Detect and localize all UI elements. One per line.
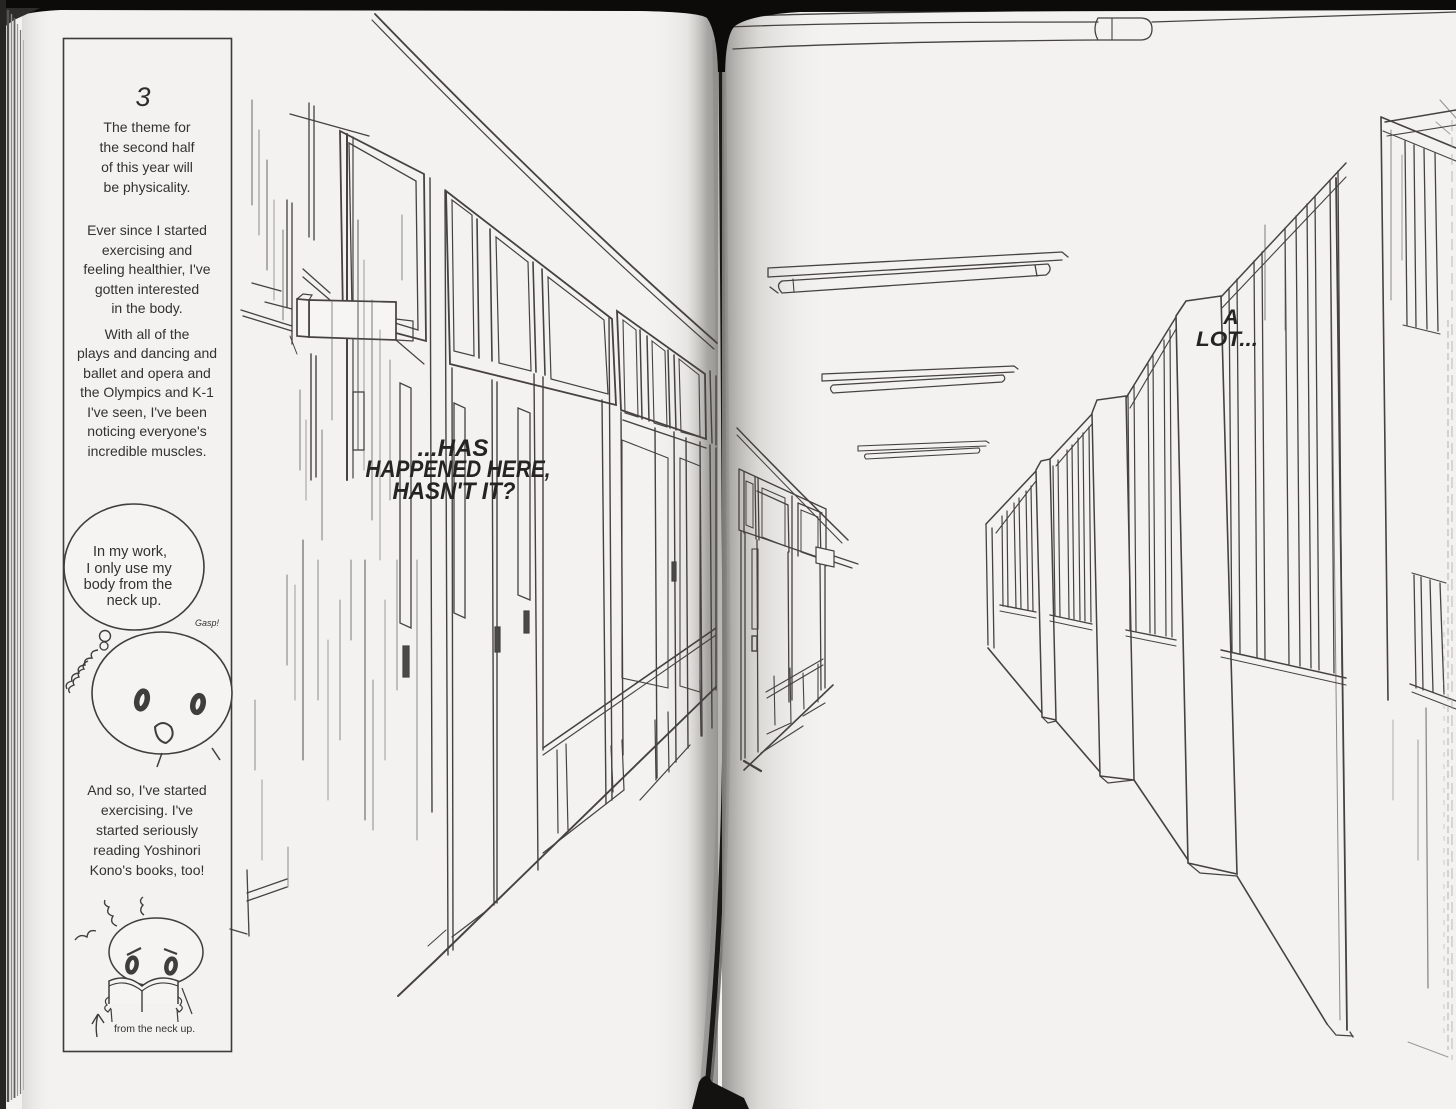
- svg-text:I've seen, I've been: I've seen, I've been: [87, 404, 207, 420]
- svg-text:And so, I've started: And so, I've started: [87, 782, 206, 798]
- svg-text:In my work,: In my work,: [93, 544, 167, 560]
- svg-text:gotten interested: gotten interested: [95, 281, 199, 297]
- svg-text:plays and dancing and: plays and dancing and: [77, 345, 217, 361]
- svg-text:from the neck up.: from the neck up.: [114, 1023, 195, 1035]
- svg-text:Kono's books, too!: Kono's books, too!: [90, 862, 205, 878]
- svg-text:neck up.: neck up.: [107, 593, 162, 609]
- svg-text:the second half: the second half: [100, 139, 195, 155]
- svg-text:of this year will: of this year will: [101, 159, 193, 175]
- svg-text:Gasp!: Gasp!: [195, 618, 220, 628]
- svg-text:reading Yoshinori: reading Yoshinori: [93, 842, 200, 858]
- svg-text:feeling healthier, I've: feeling healthier, I've: [83, 261, 210, 277]
- svg-text:exercising and: exercising and: [102, 242, 192, 258]
- svg-text:incredible muscles.: incredible muscles.: [87, 443, 206, 459]
- svg-text:The theme for: The theme for: [103, 119, 190, 135]
- svg-text:noticing everyone's: noticing everyone's: [87, 423, 206, 439]
- svg-text:the Olympics and K-1: the Olympics and K-1: [80, 384, 214, 400]
- svg-text:LOT...: LOT...: [1196, 328, 1258, 351]
- svg-text:exercising. I've: exercising. I've: [101, 802, 193, 818]
- svg-text:be physicality.: be physicality.: [104, 179, 191, 195]
- svg-text:Ever since I started: Ever since I started: [87, 222, 207, 238]
- svg-text:I only use my: I only use my: [86, 561, 172, 577]
- svg-text:in the body.: in the body.: [111, 300, 182, 316]
- svg-text:ballet and opera and: ballet and opera and: [83, 365, 211, 381]
- svg-text:A: A: [1222, 306, 1238, 329]
- svg-text:3: 3: [135, 82, 150, 112]
- svg-text:started seriously: started seriously: [96, 822, 198, 838]
- svg-text:With all of the: With all of the: [105, 326, 190, 342]
- svg-text:body from the: body from the: [84, 577, 173, 593]
- svg-text:HASN'T IT?: HASN'T IT?: [393, 478, 516, 505]
